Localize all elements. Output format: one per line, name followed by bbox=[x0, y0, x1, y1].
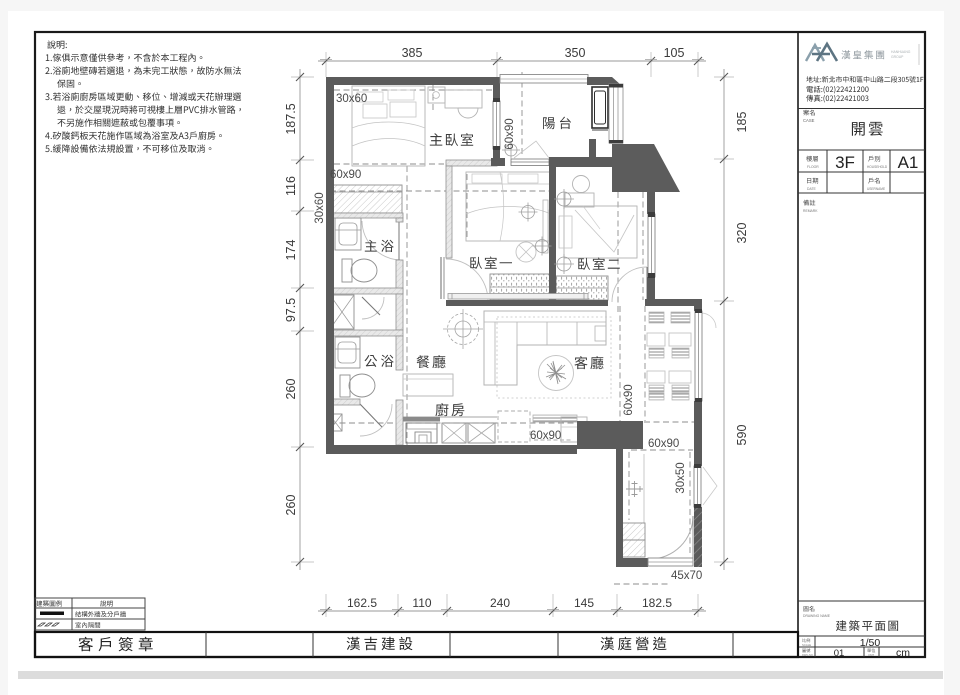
svg-text:HOUSEHOLD: HOUSEHOLD bbox=[867, 165, 888, 169]
svg-text:UNIT: UNIT bbox=[868, 653, 874, 657]
svg-text:60x90: 60x90 bbox=[530, 430, 561, 442]
svg-text:DATE: DATE bbox=[807, 187, 817, 191]
svg-text:01: 01 bbox=[834, 648, 845, 659]
svg-text:USERNAME: USERNAME bbox=[867, 187, 885, 191]
svg-text:SCALE: SCALE bbox=[802, 643, 811, 647]
svg-text:97.5: 97.5 bbox=[284, 298, 298, 322]
svg-text:A1: A1 bbox=[898, 153, 919, 172]
svg-text:30x60: 30x60 bbox=[314, 192, 326, 223]
svg-text:105: 105 bbox=[664, 46, 685, 60]
svg-text:DRAWING NAME: DRAWING NAME bbox=[803, 614, 831, 618]
svg-text:60x90: 60x90 bbox=[504, 118, 516, 149]
svg-text:162.5: 162.5 bbox=[347, 596, 377, 610]
svg-text:385: 385 bbox=[402, 46, 423, 60]
svg-text:350: 350 bbox=[565, 46, 586, 60]
svg-text:60x90: 60x90 bbox=[330, 169, 361, 181]
svg-text:CASE: CASE bbox=[803, 118, 815, 123]
svg-text:185: 185 bbox=[735, 112, 749, 133]
svg-text:182.5: 182.5 bbox=[642, 596, 672, 610]
svg-text:320: 320 bbox=[735, 223, 749, 244]
svg-text:45x70: 45x70 bbox=[671, 570, 702, 582]
svg-text:GROUP: GROUP bbox=[891, 55, 904, 59]
svg-text:240: 240 bbox=[490, 596, 510, 610]
svg-text:110: 110 bbox=[412, 596, 431, 610]
svg-text:HANHUANG: HANHUANG bbox=[891, 50, 911, 54]
svg-text:174: 174 bbox=[284, 240, 298, 261]
svg-text:REMARK: REMARK bbox=[803, 209, 818, 213]
svg-text:DWG.NO: DWG.NO bbox=[802, 653, 813, 657]
svg-text:590: 590 bbox=[735, 425, 749, 446]
svg-text:260: 260 bbox=[284, 379, 298, 400]
svg-text:cm: cm bbox=[896, 647, 910, 659]
svg-text:30x60: 30x60 bbox=[336, 93, 367, 105]
svg-text:30x50: 30x50 bbox=[675, 462, 687, 493]
svg-text:3F: 3F bbox=[835, 153, 855, 172]
svg-text:187.5: 187.5 bbox=[284, 103, 298, 134]
svg-text:116: 116 bbox=[284, 176, 298, 196]
svg-text:FLOOR: FLOOR bbox=[807, 165, 819, 169]
svg-text:145: 145 bbox=[574, 596, 594, 610]
svg-text:260: 260 bbox=[284, 495, 298, 516]
svg-text:60x90: 60x90 bbox=[648, 438, 679, 450]
svg-text:60x90: 60x90 bbox=[623, 384, 635, 415]
